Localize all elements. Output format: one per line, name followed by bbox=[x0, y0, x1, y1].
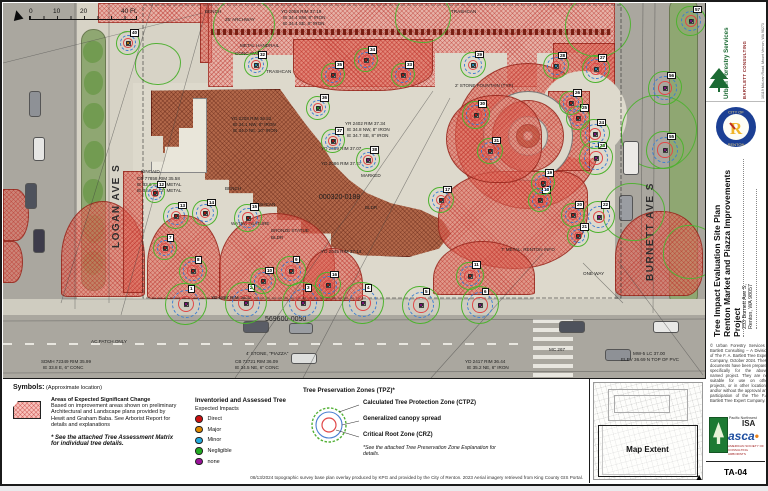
firm-name: Urban Forestry Services bbox=[723, 27, 730, 99]
impact-row: Negligible bbox=[195, 447, 305, 455]
impact-dot bbox=[195, 426, 203, 434]
impact-dot bbox=[195, 437, 203, 445]
map-annotation: TRASHCAN bbox=[451, 9, 476, 14]
legend: Symbols: (Approximate location) Areas of… bbox=[3, 379, 590, 483]
impact-dot bbox=[195, 447, 203, 455]
legend-heading: Symbols: (Approximate location) bbox=[13, 384, 102, 391]
tree-number: 57 bbox=[693, 6, 702, 14]
tree-number: 37 bbox=[335, 127, 344, 135]
svg-text:RENTON: RENTON bbox=[727, 142, 744, 147]
street-label-logan: LOGAN AVE S bbox=[111, 108, 122, 248]
tree-number: 11 bbox=[472, 261, 481, 269]
firm-address: 10119 McLean Road, Mount Vernon, WA 9827… bbox=[761, 23, 765, 99]
tree-number: 8 bbox=[195, 256, 202, 264]
tree-number: 10 bbox=[265, 267, 274, 275]
asca-caption: AMERICAN SOCIETY OF CONSULTING ARBORISTS bbox=[728, 444, 765, 456]
tpz-canopy-label: Generalized canopy spread bbox=[363, 416, 441, 422]
tree-number: 30 bbox=[478, 100, 487, 108]
tree-number: 13 bbox=[178, 202, 187, 210]
impact-label: Major bbox=[208, 427, 222, 433]
areas-desc: Based on improvement areas shown on prel… bbox=[51, 403, 179, 429]
tree-number: 33 bbox=[405, 61, 414, 69]
map-annotation: BLDR bbox=[271, 235, 283, 240]
inset-block bbox=[614, 395, 670, 413]
firm-sub: BARTLETT CONSULTING bbox=[742, 41, 747, 99]
scale-bar-rule bbox=[29, 16, 137, 20]
map-annotation: MARKED bbox=[361, 173, 381, 178]
plan-sheet: LOGAN AVE S BURNETT AVE S ▲ 0 10 20 40 F… bbox=[0, 0, 768, 486]
impact-row: none bbox=[195, 458, 305, 466]
svg-text:R: R bbox=[729, 119, 742, 138]
impacts-subtitle: Expected Impacts bbox=[195, 406, 305, 412]
tree-number: 28 bbox=[558, 52, 567, 60]
tree-number: 9 bbox=[293, 256, 300, 264]
tree-number: 6 bbox=[482, 288, 489, 296]
impact-dot bbox=[195, 415, 203, 423]
asca-logo: asca• bbox=[728, 429, 759, 443]
tree-number: 16 bbox=[330, 271, 339, 279]
scale-bar: 0 10 20 40 Ft. bbox=[29, 9, 139, 20]
map-annotation: ELEV 36.69 N TOP OF PVC bbox=[621, 357, 679, 362]
project-address: 233 Burnett Ave S, Renton, WA 98057 bbox=[742, 189, 757, 329]
sheet-number: TA-04 bbox=[706, 461, 765, 482]
north-arrow-icon: ▲ bbox=[7, 5, 27, 25]
map-annotation: AC.PATCH.ONLY bbox=[91, 339, 127, 344]
map-annotation: SDMH 72349 RIM 35.99 bbox=[41, 359, 91, 364]
impact-label: none bbox=[208, 459, 220, 465]
map-annotation: METAL HANDRAIL bbox=[240, 43, 279, 48]
sheet-title-section: Tree Impact Evaluation Site Plan Renton … bbox=[706, 159, 765, 337]
map-annotation: 4' STONE, "PIAZZA" bbox=[246, 351, 288, 356]
renton-seal-icon: R CITY OF RENTON bbox=[714, 105, 758, 149]
tree-number: 12 bbox=[157, 181, 166, 189]
tpz-title: Tree Preservation Zones (TPZ)* bbox=[303, 387, 573, 394]
impact-row: Minor bbox=[195, 437, 305, 445]
map-extent-inset: Map Extent ▲ bbox=[590, 379, 707, 483]
tree-number: 40 bbox=[130, 29, 139, 37]
inset-north-arrow-icon: ▲ bbox=[695, 472, 704, 482]
firm-text: Urban Forestry Services BARTLETT CONSULT… bbox=[718, 7, 768, 99]
map-annotation: IE 34.8 NW, 8" IRON bbox=[347, 127, 390, 132]
tree-number: 26 bbox=[573, 89, 582, 97]
tree-number: 56 bbox=[667, 72, 676, 80]
map-annotation: BENCH bbox=[225, 186, 241, 191]
map-annotation: YD 2417 RIM 36.44 bbox=[465, 359, 505, 364]
map-annotation: CB 72721 RIM 36.09 bbox=[235, 359, 278, 364]
tree-number: 14 bbox=[207, 199, 216, 207]
tree-number: 4 bbox=[365, 284, 372, 292]
project-address-line2: Renton, WA 98057 bbox=[748, 284, 754, 329]
map-annotation: IE 33.8 E, 6" CONC bbox=[43, 365, 83, 370]
map-annotation: YR 2402 RIM 37.34 bbox=[345, 121, 385, 126]
map-annotation: 000320-0188 bbox=[319, 195, 360, 200]
scale-tick-label: 10 bbox=[53, 8, 60, 15]
sheet-title: Tree Impact Evaluation Site Plan Renton … bbox=[712, 159, 744, 337]
change-area-swatch bbox=[13, 401, 41, 419]
inset-extent-box: Map Extent bbox=[598, 425, 698, 477]
tree-number: 1 bbox=[188, 285, 195, 293]
map-annotation: 7' METAL, RENTON INFO bbox=[501, 247, 555, 252]
site-map: LOGAN AVE S BURNETT AVE S ▲ 0 10 20 40 F… bbox=[3, 3, 706, 379]
tree-number: 3 bbox=[305, 284, 312, 292]
impact-dot bbox=[195, 458, 203, 466]
title-block: Urban Forestry Services BARTLETT CONSULT… bbox=[706, 3, 765, 483]
tpz-ctpz-label: Calculated Tree Protection Zone (CTPZ) bbox=[363, 400, 476, 406]
map-attribution: 08/13/2024 topographic survey base plan … bbox=[250, 475, 583, 480]
impacts-title: Inventoried and Assessed Tree bbox=[195, 397, 305, 404]
impact-label: Direct bbox=[208, 416, 222, 422]
map-annotation: MW-5 LC 37.00 bbox=[633, 351, 665, 356]
map-annotation: IE 34.4 SW, 8" IRON bbox=[283, 15, 325, 20]
tree-number: 35 bbox=[335, 61, 344, 69]
tree-number: 17 bbox=[443, 186, 452, 194]
legend-areas-column: Areas of Expected Significant Change Bas… bbox=[51, 397, 179, 447]
firm-block: Urban Forestry Services BARTLETT CONSULT… bbox=[706, 5, 765, 102]
tree-number: 5 bbox=[423, 288, 430, 296]
map-annotation: IE 35.2 NE, 6" IRON bbox=[467, 365, 509, 370]
map-annotation: IE 34.1 NW, 8" IRON bbox=[233, 122, 276, 127]
map-annotation: BLDR bbox=[365, 205, 377, 210]
tree-number: 32 bbox=[258, 51, 267, 59]
svg-text:CITY OF: CITY OF bbox=[728, 110, 744, 115]
map-annotation: YD 2045 RIM 37.14 bbox=[321, 249, 361, 254]
map-annotation: BRONZE STATUE bbox=[271, 228, 309, 233]
map-annotation: 2' STONE FOUNTAIN (TYP) bbox=[455, 83, 513, 88]
tree-number: 15 bbox=[250, 203, 259, 211]
impact-label: Minor bbox=[208, 437, 222, 443]
map-annotation: IE 34.0 NE, 10" IRON bbox=[233, 128, 277, 133]
tree-number: 21 bbox=[580, 223, 589, 231]
tree-number: 24 bbox=[597, 119, 606, 127]
legend-heading-note: (Approximate location) bbox=[46, 385, 102, 391]
legend-heading-text: Symbols: bbox=[13, 384, 45, 391]
sheet-title-line1: Tree Impact Evaluation Site Plan bbox=[712, 205, 722, 337]
isa-label: ISA bbox=[742, 419, 755, 428]
map-annotation: KINCAID bbox=[141, 169, 160, 174]
city-seal: R CITY OF RENTON bbox=[706, 103, 765, 155]
tpz-crz-label: Critical Root Zone (CRZ) bbox=[363, 432, 433, 438]
legend-tpz-column: Tree Preservation Zones (TPZ)* Calculate… bbox=[303, 387, 573, 394]
map-annotation: IE 34.5 NE, 6" CONC bbox=[235, 365, 279, 370]
areas-note: * See the attached Tree Assessment Matri… bbox=[51, 435, 179, 447]
pnw-isa-logo-icon bbox=[709, 417, 728, 453]
tree-number: 38 bbox=[370, 146, 379, 154]
scale-tick-label: 20 bbox=[80, 8, 87, 15]
scale-tick-label: 0 bbox=[29, 8, 33, 15]
tpz-diagram bbox=[303, 397, 363, 453]
impact-row: Major bbox=[195, 426, 305, 434]
sheet-title-line2: Renton Market and Piazza Improvements Pr… bbox=[722, 170, 742, 337]
impact-label: Negligible bbox=[208, 448, 232, 454]
map-annotation: 25' ARCHWAY bbox=[225, 17, 255, 22]
map-annotation: IE 34.4 SE, 8" IRON bbox=[283, 21, 324, 26]
tree-number: 55 bbox=[667, 133, 676, 141]
tree-number: 19 bbox=[545, 169, 554, 177]
tree-number: 7 bbox=[167, 234, 174, 242]
tree-number: 36 bbox=[320, 94, 329, 102]
map-annotation: YD 2058 RIM 37.19 bbox=[281, 9, 321, 14]
map-annotation: ONE WAY bbox=[583, 271, 604, 276]
map-annotation: BENCH bbox=[205, 9, 221, 14]
map-annotation: YD 2208 RIM 36.52 bbox=[231, 116, 271, 121]
tree-number: 20 bbox=[575, 201, 584, 209]
tree-number: 34 bbox=[368, 46, 377, 54]
inset-extent-label: Map Extent bbox=[599, 445, 697, 454]
tree-number: 29 bbox=[475, 51, 484, 59]
scale-tick-label: 40 Ft. bbox=[121, 8, 138, 15]
copyright-note: © Urban Forestry Services / Bartlett Con… bbox=[706, 341, 768, 419]
map-annotation: MC 267 bbox=[549, 347, 565, 352]
association-logos: Pacific Northwest ISA asca• AMERICAN SOC… bbox=[706, 413, 765, 459]
legend-impacts-column: Inventoried and Assessed Tree Expected I… bbox=[195, 397, 305, 469]
tree-number: 27 bbox=[598, 54, 607, 62]
map-annotation: IE 34.7 SE, 8" IRON bbox=[347, 133, 388, 138]
tree-number: 31 bbox=[492, 137, 501, 145]
map-annotation: TRASHCAN bbox=[266, 69, 291, 74]
tpz-note: *See the attached Tree Preservation Zone… bbox=[363, 445, 503, 457]
impact-row: Direct bbox=[195, 415, 305, 423]
tree-number: 22 bbox=[601, 201, 610, 209]
